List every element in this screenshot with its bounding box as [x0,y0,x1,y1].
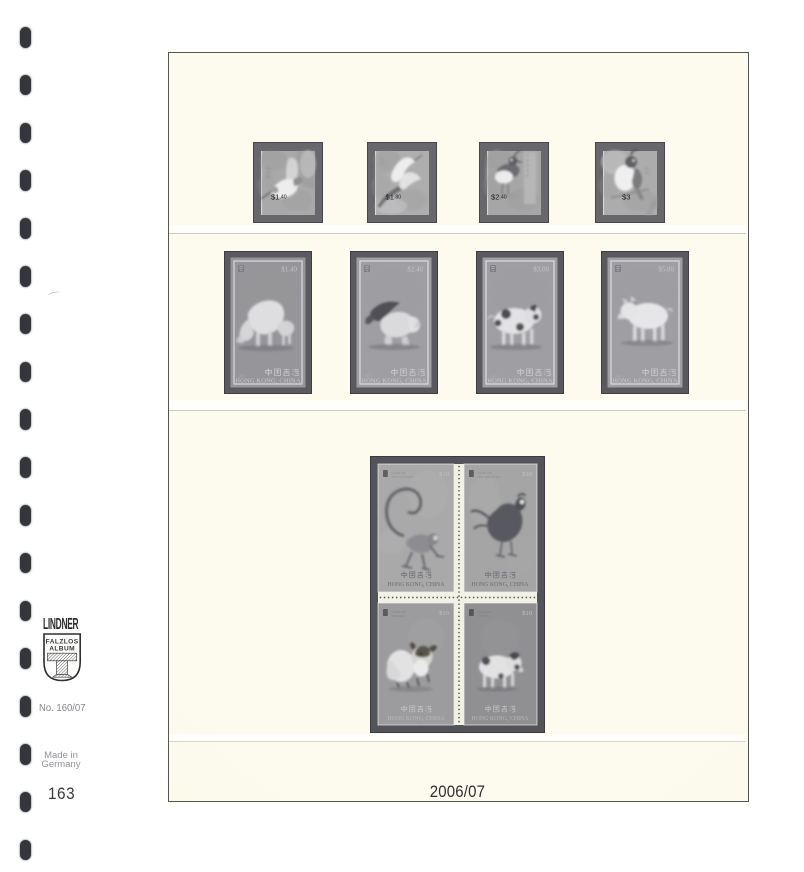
svg-text:P I G: P I G [500,267,513,272]
svg-text:$1.40: $1.40 [281,266,297,274]
svg-text:ALBUM: ALBUM [49,646,75,653]
svg-text:HONG KONG, CHINA: HONG KONG, CHINA [235,378,301,385]
svg-text:THE DOG: THE DOG [391,614,406,618]
svg-text:HONG KONG, CHINA: HONG KONG, CHINA [487,378,553,385]
svg-text:HONG KONG, CHINA: HONG KONG, CHINA [387,582,445,588]
svg-text:$10: $10 [439,471,450,478]
svg-text:P I G: P I G [374,267,387,272]
svg-text:$2.40: $2.40 [407,266,423,274]
svg-text:HONG KONG, CHINA: HONG KONG, CHINA [387,716,445,722]
svg-text:THE PIG: THE PIG [477,614,490,618]
svg-text:$10: $10 [522,610,533,617]
svg-text:THE MONKEY: THE MONKEY [391,475,414,479]
svg-text:$1.80: $1.80 [385,192,401,201]
svg-text:FALZLOS: FALZLOS [45,638,78,645]
svg-text:THE ROOSTER: THE ROOSTER [477,475,501,479]
svg-text:HONG KONG, CHINA: HONG KONG, CHINA [361,378,427,385]
svg-text:HONG KONG, CHINA: HONG KONG, CHINA [471,716,529,722]
svg-text:$2.40: $2.40 [491,192,507,201]
svg-text:$10: $10 [522,471,533,478]
svg-text:$1.40: $1.40 [271,192,287,201]
svg-text:P I G: P I G [625,267,638,272]
svg-text:HONG KONG, CHINA: HONG KONG, CHINA [471,582,529,588]
svg-text:$5.00: $5.00 [658,266,674,274]
svg-text:$10: $10 [439,610,450,617]
svg-text:P I G: P I G [248,267,261,272]
svg-text:$3.00: $3.00 [533,266,549,274]
svg-text:$3: $3 [622,192,630,201]
svg-text:HONG KONG, CHINA: HONG KONG, CHINA [612,378,678,385]
